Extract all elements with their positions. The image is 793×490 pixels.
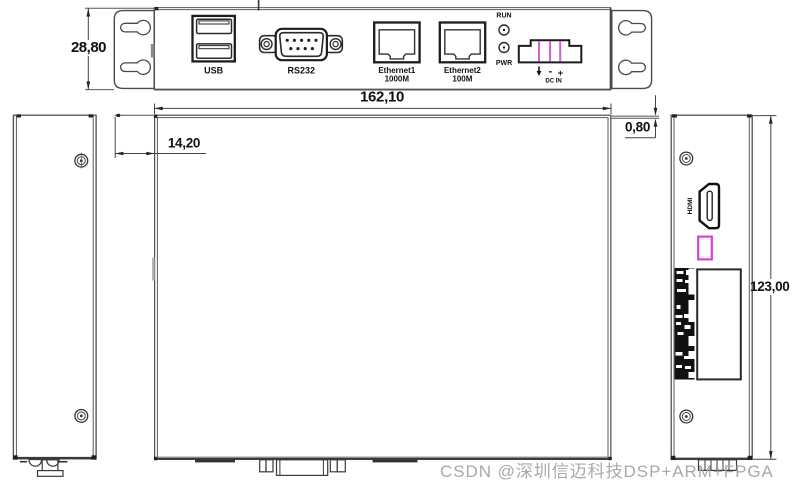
svg-text:14,20: 14,20 [168, 136, 200, 151]
svg-text:DC IN: DC IN [545, 79, 561, 85]
svg-text:CSDN @深圳信迈科技DSP+ARM+FPGA: CSDN @深圳信迈科技DSP+ARM+FPGA [440, 462, 774, 481]
svg-text:28,80: 28,80 [71, 39, 106, 56]
svg-text:0,80: 0,80 [625, 120, 650, 135]
svg-text:USB: USB [204, 66, 224, 76]
svg-text:RS232: RS232 [288, 66, 316, 76]
svg-text:123,00: 123,00 [750, 279, 790, 294]
svg-text:PWR: PWR [496, 60, 512, 67]
svg-text:1000M: 1000M [385, 75, 410, 84]
svg-text:162,10: 162,10 [360, 89, 404, 106]
svg-text:+: + [558, 68, 564, 79]
svg-text:Ethernet2: Ethernet2 [444, 66, 481, 75]
svg-text:-: - [548, 66, 552, 78]
svg-text:100M: 100M [452, 75, 472, 84]
svg-text:RUN: RUN [496, 12, 511, 19]
svg-text:Ethernet1: Ethernet1 [378, 66, 415, 75]
svg-text:HDMI: HDMI [687, 198, 694, 215]
